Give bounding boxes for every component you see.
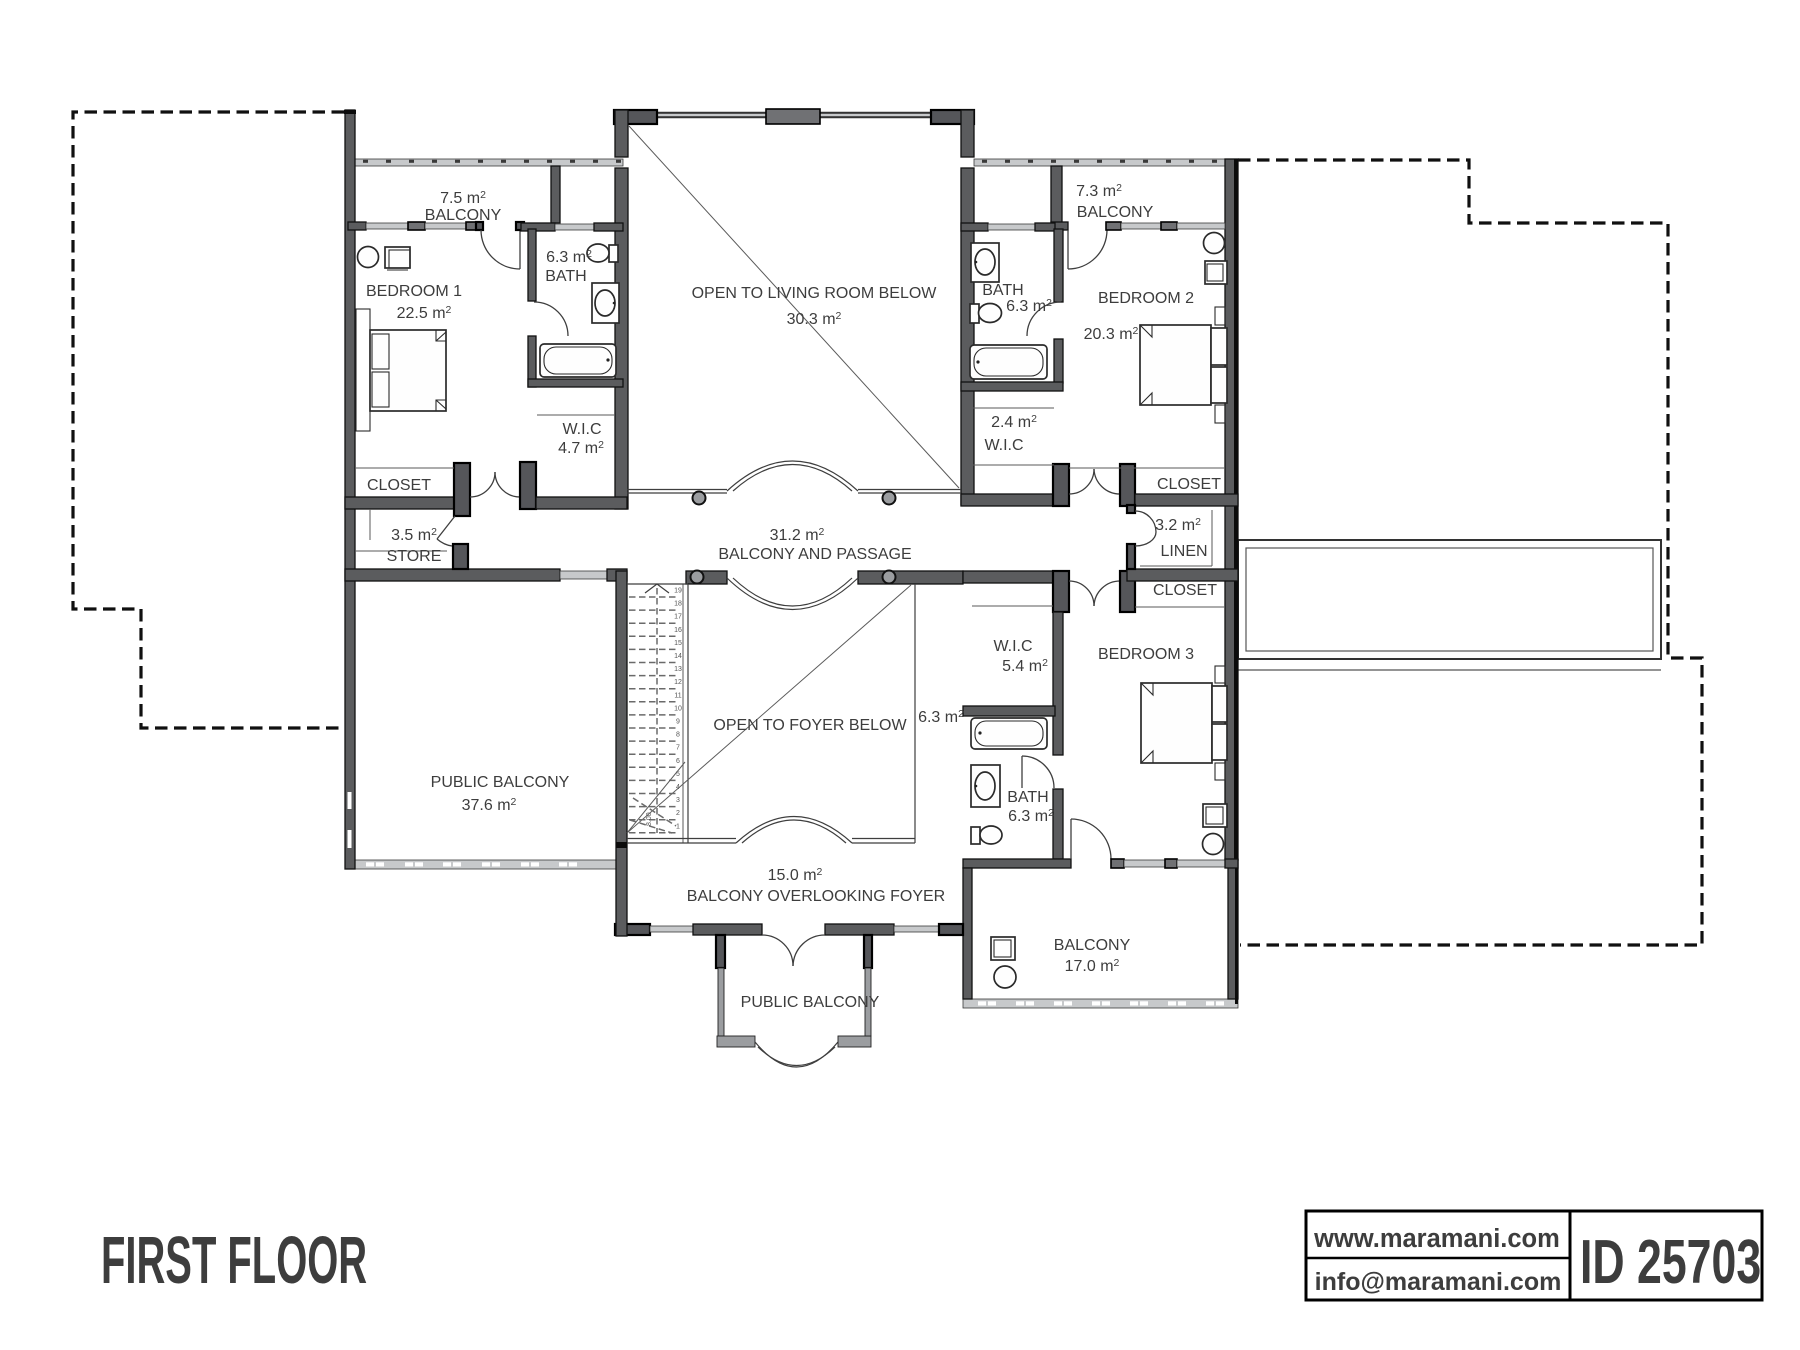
svg-text:BALCONY: BALCONY	[425, 207, 502, 224]
svg-text:16: 16	[674, 627, 682, 634]
svg-text:BALCONY AND PASSAGE: BALCONY AND PASSAGE	[718, 546, 911, 563]
svg-text:LINEN: LINEN	[1160, 543, 1207, 560]
svg-text:2: 2	[676, 810, 680, 817]
svg-text:4.7 m2: 4.7 m2	[558, 439, 604, 457]
svg-text:11: 11	[674, 692, 681, 699]
svg-text:31.2 m2: 31.2 m2	[770, 526, 825, 544]
svg-text:OPEN TO FOYER BELOW: OPEN TO FOYER BELOW	[713, 717, 907, 734]
svg-text:W.I.C: W.I.C	[993, 638, 1032, 655]
svg-text:3: 3	[676, 797, 680, 804]
svg-text:CLOSET: CLOSET	[1153, 582, 1217, 599]
svg-text:7.5 m2: 7.5 m2	[440, 189, 486, 207]
svg-text:6.3 m2: 6.3 m2	[1006, 297, 1052, 315]
svg-text:info@maramani.com: info@maramani.com	[1315, 1268, 1562, 1296]
svg-text:3.5 m2: 3.5 m2	[391, 526, 437, 544]
svg-text:13: 13	[674, 666, 682, 673]
svg-text:W.I.C: W.I.C	[562, 421, 601, 438]
svg-text:20.3 m2: 20.3 m2	[1084, 325, 1139, 343]
svg-text:OPEN TO LIVING ROOM BELOW: OPEN TO LIVING ROOM BELOW	[692, 285, 938, 302]
svg-text:5.4 m2: 5.4 m2	[1002, 657, 1048, 675]
svg-text:CLOSET: CLOSET	[1157, 476, 1221, 493]
svg-text:30.3 m2: 30.3 m2	[787, 310, 842, 328]
svg-text:8: 8	[676, 732, 680, 739]
svg-text:4: 4	[676, 784, 680, 791]
svg-text:6.3 m2: 6.3 m2	[918, 708, 964, 726]
svg-text:BALCONY: BALCONY	[1077, 204, 1154, 221]
svg-text:37.6 m2: 37.6 m2	[462, 796, 517, 814]
svg-text:PUBLIC BALCONY: PUBLIC BALCONY	[431, 774, 570, 791]
svg-text:1: 1	[676, 823, 680, 830]
svg-text:15: 15	[674, 640, 682, 647]
svg-text:BATH: BATH	[1007, 789, 1048, 806]
svg-text:STORE: STORE	[387, 548, 442, 565]
svg-text:W.I.C: W.I.C	[984, 437, 1023, 454]
svg-text:3.2 m2: 3.2 m2	[1155, 516, 1201, 534]
svg-text:BEDROOM 1: BEDROOM 1	[366, 283, 462, 300]
svg-text:10: 10	[674, 705, 682, 712]
svg-text:BATH: BATH	[545, 268, 586, 285]
svg-text:PUBLIC BALCONY: PUBLIC BALCONY	[741, 994, 880, 1011]
svg-text:14: 14	[674, 653, 682, 660]
svg-text:BALCONY OVERLOOKING FOYER: BALCONY OVERLOOKING FOYER	[687, 888, 945, 905]
svg-text:22.5 m2: 22.5 m2	[397, 304, 452, 322]
svg-text:BEDROOM 3: BEDROOM 3	[1098, 646, 1194, 663]
svg-text:www.maramani.com: www.maramani.com	[1313, 1225, 1560, 1253]
svg-text:8.00: 8.00	[646, 812, 653, 826]
svg-text:ID 25703: ID 25703	[1580, 1228, 1761, 1297]
svg-text:FIRST FLOOR: FIRST FLOOR	[101, 1222, 367, 1297]
svg-text:7.3 m2: 7.3 m2	[1076, 182, 1122, 200]
svg-text:BEDROOM 2: BEDROOM 2	[1098, 290, 1194, 307]
svg-text:18: 18	[674, 601, 682, 608]
svg-text:17: 17	[674, 614, 682, 621]
svg-text:6: 6	[676, 758, 680, 765]
svg-text:7: 7	[676, 745, 680, 752]
svg-text:19: 19	[674, 588, 682, 595]
svg-text:6.3 m2: 6.3 m2	[1008, 807, 1054, 825]
svg-text:15.0 m2: 15.0 m2	[768, 866, 823, 884]
svg-text:2.4 m2: 2.4 m2	[991, 413, 1037, 431]
svg-text:BATH: BATH	[982, 282, 1023, 299]
svg-text:CLOSET: CLOSET	[367, 477, 431, 494]
svg-text:17.0 m2: 17.0 m2	[1065, 957, 1120, 975]
svg-text:BALCONY: BALCONY	[1054, 937, 1131, 954]
svg-text:9: 9	[676, 719, 680, 726]
svg-text:6.3 m2: 6.3 m2	[546, 248, 592, 266]
svg-text:12: 12	[674, 679, 682, 686]
